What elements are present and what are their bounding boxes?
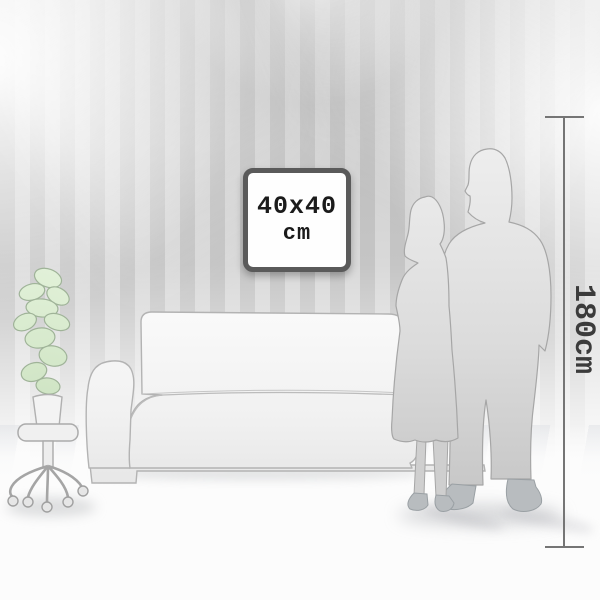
- frame-unit-label: cm: [283, 221, 311, 247]
- ruler-bottom-cap: [545, 546, 584, 548]
- ruler-line: [563, 117, 565, 547]
- frame-size-label: 40x40: [257, 193, 337, 221]
- size-guide-visualization: 40x40 cm 180cm: [0, 0, 600, 600]
- woman-feet: [408, 493, 454, 512]
- plant-leaves: [11, 265, 73, 396]
- man-feet: [441, 479, 542, 511]
- woman-silhouette: [392, 196, 458, 442]
- couple-silhouette: [380, 140, 565, 535]
- stool-column: [43, 441, 53, 468]
- stool-seat: [18, 424, 78, 441]
- potted-plant-on-stool: [0, 258, 95, 520]
- woman-legs: [414, 438, 448, 497]
- ruler-height-label: 180cm: [567, 266, 599, 392]
- picture-frame: 40x40 cm: [243, 168, 351, 272]
